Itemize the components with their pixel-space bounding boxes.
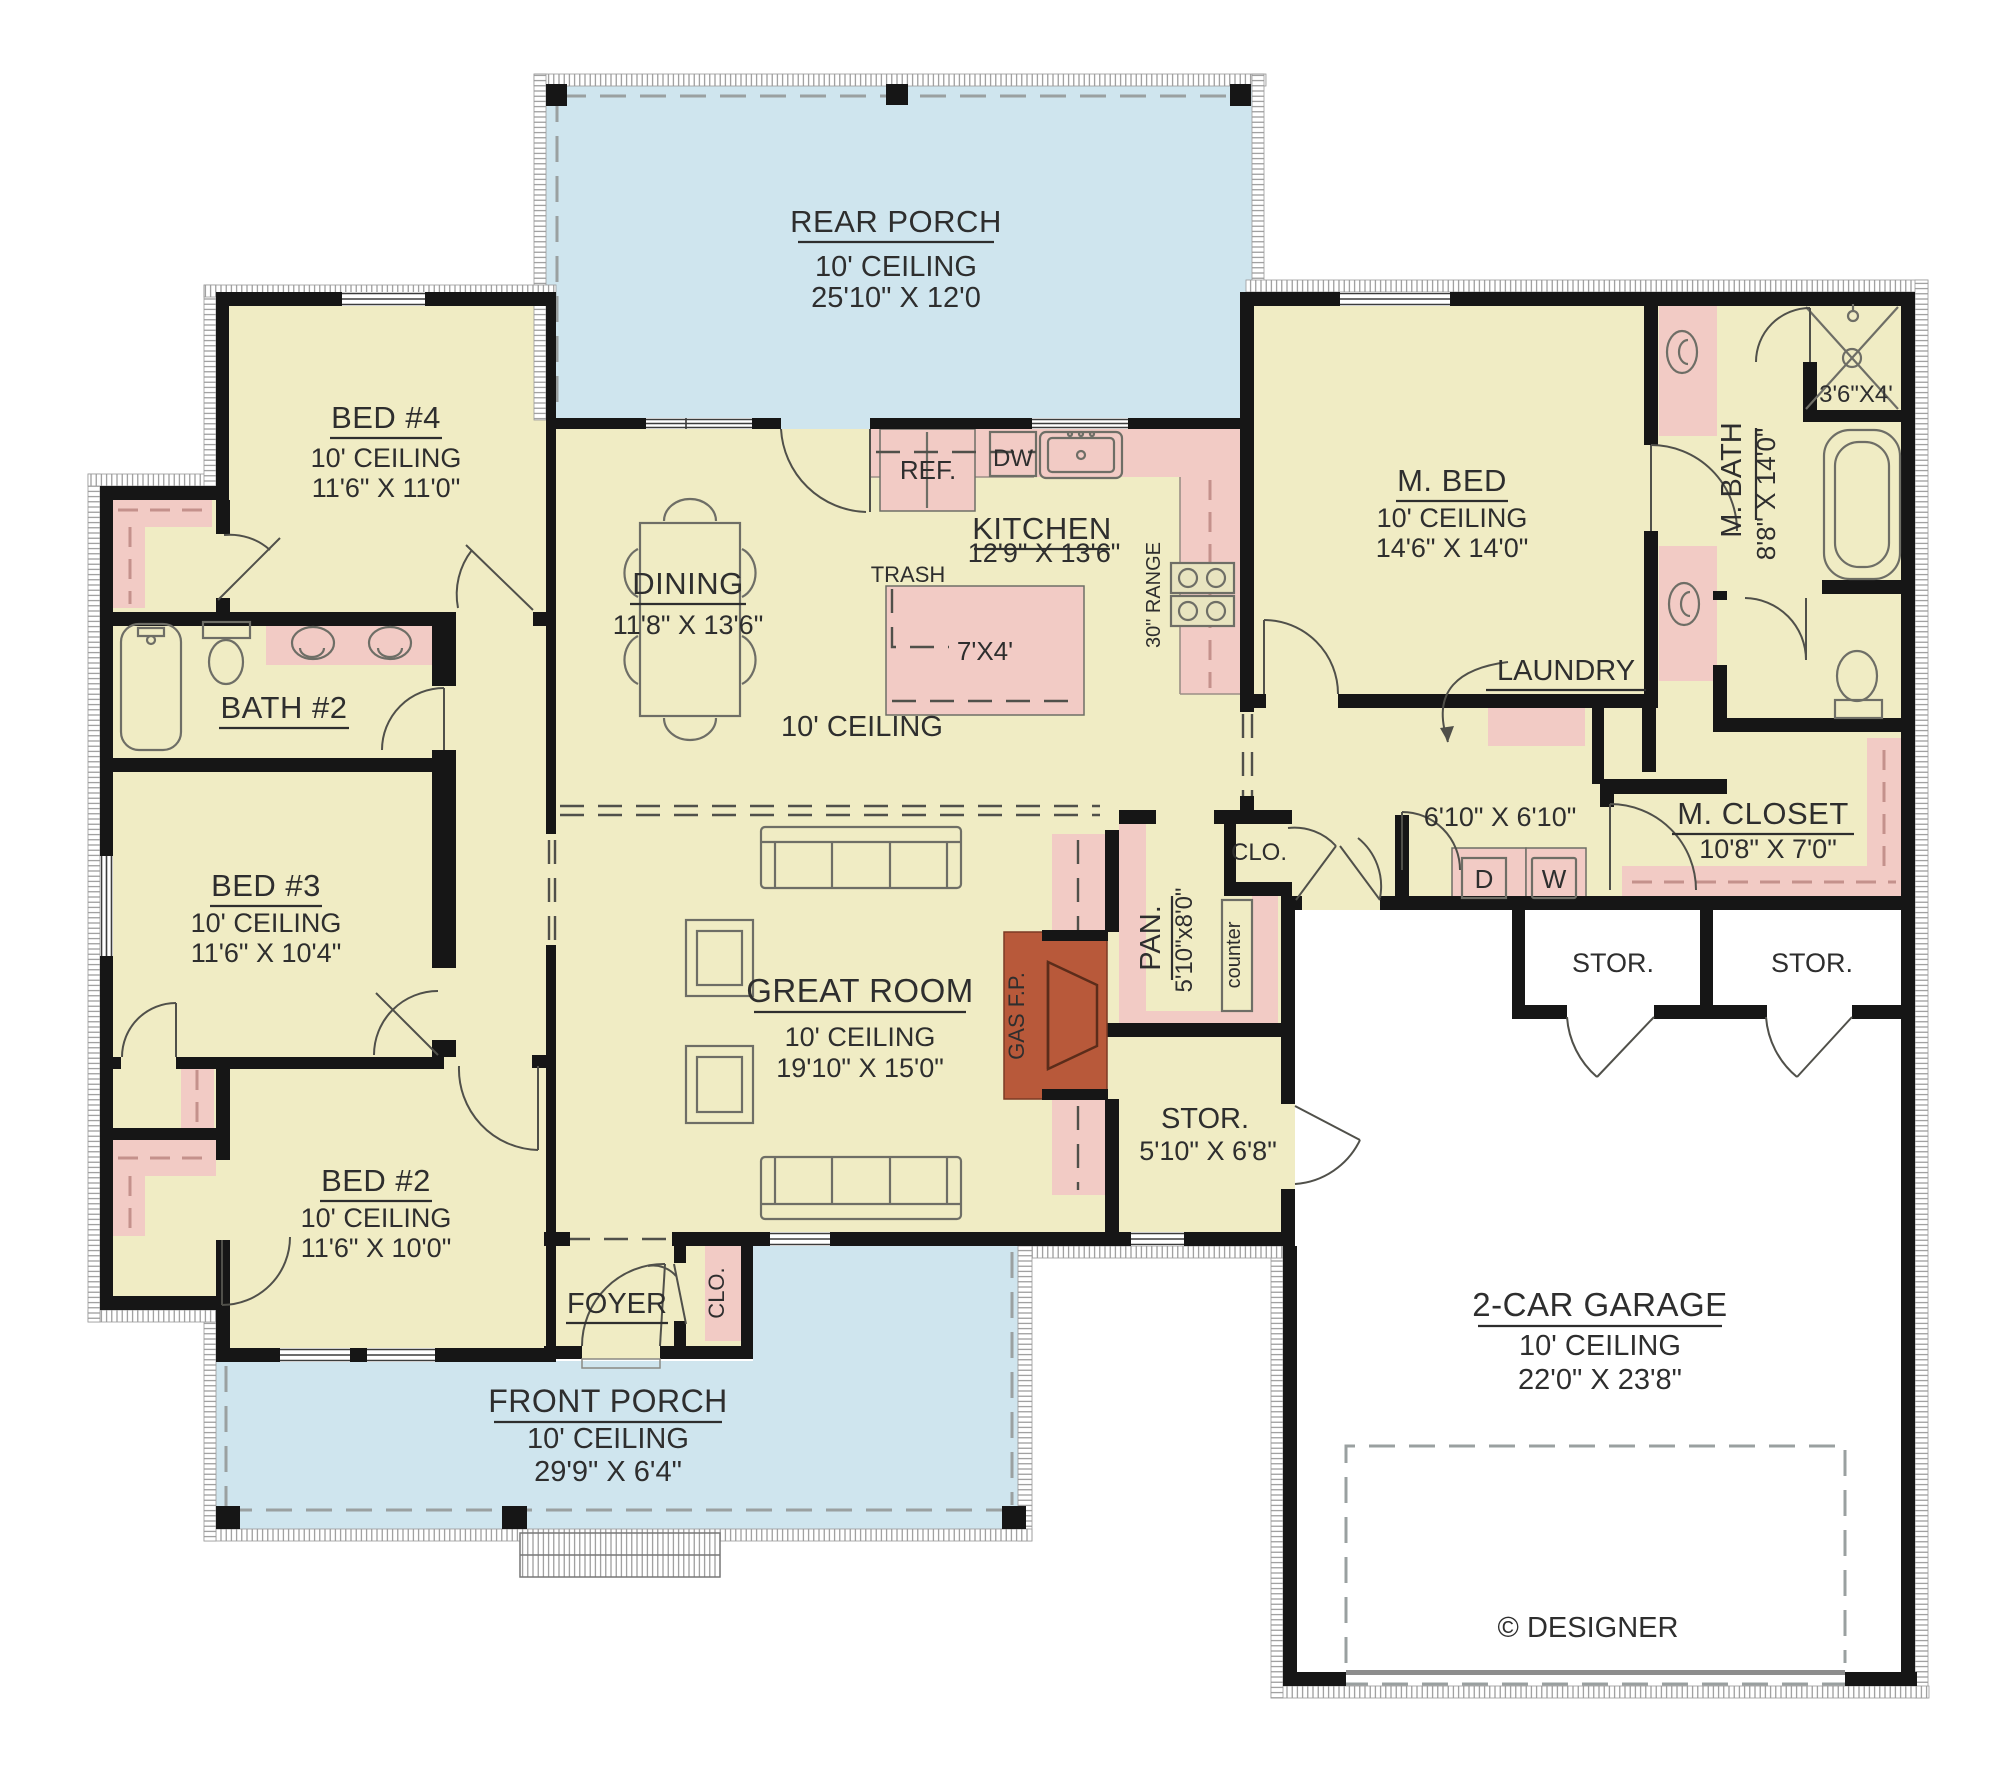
svg-text:BED #4: BED #4 xyxy=(331,400,441,435)
svg-text:10' CEILING: 10' CEILING xyxy=(815,251,977,283)
svg-text:22'0" X 23'8": 22'0" X 23'8" xyxy=(1518,1364,1682,1396)
svg-text:W: W xyxy=(1542,864,1567,894)
svg-text:3'6"X4': 3'6"X4' xyxy=(1819,381,1893,408)
svg-text:REAR PORCH: REAR PORCH xyxy=(790,204,1002,239)
svg-text:8'8" X 14'0": 8'8" X 14'0" xyxy=(1751,428,1781,560)
svg-text:CLO.: CLO. xyxy=(1231,839,1287,866)
svg-text:10' CEILING: 10' CEILING xyxy=(527,1423,689,1455)
svg-text:BATH #2: BATH #2 xyxy=(221,690,348,725)
svg-text:11'6" X 10'0": 11'6" X 10'0" xyxy=(301,1233,452,1263)
svg-text:REF.: REF. xyxy=(900,455,956,485)
svg-text:2-CAR GARAGE: 2-CAR GARAGE xyxy=(1472,1286,1727,1323)
svg-text:12'9" X 13'6": 12'9" X 13'6" xyxy=(968,538,1121,568)
svg-text:STOR.: STOR. xyxy=(1572,948,1654,978)
svg-text:10' CEILING: 10' CEILING xyxy=(311,443,462,473)
svg-text:7'X4': 7'X4' xyxy=(957,636,1013,666)
svg-text:10' CEILING: 10' CEILING xyxy=(785,1022,936,1052)
svg-text:FRONT PORCH: FRONT PORCH xyxy=(488,1383,728,1419)
svg-text:TRASH: TRASH xyxy=(871,562,946,587)
svg-text:M. BED: M. BED xyxy=(1397,463,1507,498)
svg-text:GAS F.P.: GAS F.P. xyxy=(1004,972,1029,1060)
svg-text:10' CEILING: 10' CEILING xyxy=(1519,1330,1681,1362)
svg-text:14'6" X 14'0": 14'6" X 14'0" xyxy=(1376,533,1529,563)
svg-text:LAUNDRY: LAUNDRY xyxy=(1497,655,1635,687)
svg-text:CLO.: CLO. xyxy=(704,1267,729,1318)
svg-text:STOR.: STOR. xyxy=(1771,948,1853,978)
svg-text:M. BATH: M. BATH xyxy=(1716,422,1748,537)
svg-text:PAN.: PAN. xyxy=(1135,905,1167,971)
svg-text:11'8" X 13'6": 11'8" X 13'6" xyxy=(613,610,764,640)
svg-text:30" RANGE: 30" RANGE xyxy=(1143,542,1165,648)
svg-text:STOR.: STOR. xyxy=(1161,1103,1249,1135)
svg-text:5'10" X 6'8": 5'10" X 6'8" xyxy=(1139,1136,1277,1166)
svg-text:FOYER: FOYER xyxy=(567,1288,667,1320)
svg-text:29'9" X 6'4": 29'9" X 6'4" xyxy=(534,1456,682,1488)
svg-text:M. CLOSET: M. CLOSET xyxy=(1677,796,1849,831)
svg-text:© DESIGNER: © DESIGNER xyxy=(1498,1612,1679,1644)
svg-text:BED #3: BED #3 xyxy=(211,868,321,903)
svg-text:10' CEILING: 10' CEILING xyxy=(1377,503,1528,533)
svg-text:10' CEILING: 10' CEILING xyxy=(781,711,943,743)
svg-text:DINING: DINING xyxy=(632,566,744,601)
svg-text:11'6" X 11'0": 11'6" X 11'0" xyxy=(312,473,461,503)
svg-text:5'10"x8'0": 5'10"x8'0" xyxy=(1171,888,1198,993)
svg-text:11'6" X 10'4": 11'6" X 10'4" xyxy=(191,938,342,968)
svg-text:D: D xyxy=(1475,864,1494,894)
svg-text:BED #2: BED #2 xyxy=(321,1163,431,1198)
svg-text:25'10" X 12'0: 25'10" X 12'0 xyxy=(811,282,981,314)
svg-text:counter: counter xyxy=(1223,921,1245,988)
svg-text:6'10" X 6'10": 6'10" X 6'10" xyxy=(1424,802,1577,832)
svg-text:10' CEILING: 10' CEILING xyxy=(301,1203,452,1233)
svg-text:10'8" X 7'0": 10'8" X 7'0" xyxy=(1699,834,1837,864)
svg-text:19'10" X 15'0": 19'10" X 15'0" xyxy=(776,1053,944,1083)
svg-text:DW: DW xyxy=(993,445,1033,472)
svg-text:GREAT ROOM: GREAT ROOM xyxy=(746,972,973,1009)
svg-text:10' CEILING: 10' CEILING xyxy=(191,908,342,938)
